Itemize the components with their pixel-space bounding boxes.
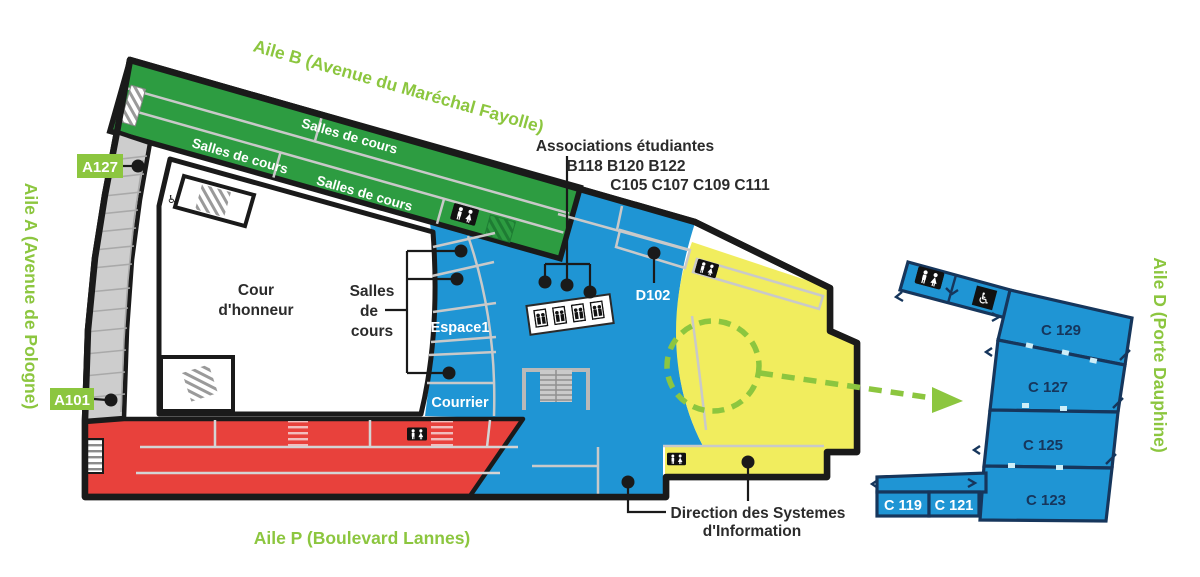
detail-corridor — [877, 473, 986, 492]
room-label: C 127 — [1028, 379, 1068, 396]
direction-label: d'Information — [703, 523, 801, 540]
room-label: C 119 — [884, 498, 922, 514]
room-label: C 125 — [1023, 437, 1063, 454]
floorplan-map: Salles de cours Salles de cours Salles d… — [0, 0, 1200, 577]
associations-rooms-c: C105 C107 C109 C111 — [610, 177, 770, 194]
badge-a127: A127 — [77, 154, 123, 178]
direction-label: Direction des Systemes — [671, 505, 846, 522]
courtyard-label: Cour — [238, 282, 274, 299]
wing-label-aile-a: Aile A (Avenue de Pologne) — [21, 183, 41, 410]
room-label: Espace1 — [431, 320, 490, 336]
svg-text:A101: A101 — [54, 392, 90, 409]
svg-text:A127: A127 — [82, 159, 118, 176]
floorplan-page: Salles de cours Salles de cours Salles d… — [0, 0, 1200, 577]
bracket-label: Salles — [350, 283, 395, 300]
wing-p-red — [85, 419, 523, 496]
courtyard-label: d'honneur — [218, 302, 293, 319]
wing-label-aile-p: Aile P (Boulevard Lannes) — [254, 528, 471, 548]
room-label: C 123 — [1026, 492, 1066, 509]
room-label: C 129 — [1041, 322, 1081, 339]
bracket-label: de — [360, 303, 378, 320]
escalator-hatch-red-1 — [288, 421, 308, 446]
escalator-hatch-red-2 — [431, 421, 453, 446]
bracket-label: cours — [351, 323, 393, 340]
room-label: D102 — [636, 288, 671, 304]
zoom-arrowhead — [932, 387, 963, 413]
wheelchair-icon-courtyard: ♿ — [167, 194, 177, 206]
associations-rooms-b: B118 B120 B122 — [567, 158, 686, 175]
wc-icon-red-wing — [407, 427, 427, 440]
associations-title: Associations étudiantes — [536, 138, 714, 155]
room-label: Courrier — [431, 395, 489, 411]
wing-label-aile-d: Aile D (Porte Dauphine) — [1150, 257, 1170, 452]
wc-icon-yellow-south — [667, 453, 686, 465]
room-label: C 121 — [935, 498, 974, 514]
stairs-strip-red-west — [87, 439, 103, 473]
badge-a101: A101 — [50, 388, 94, 410]
detail-aile-d: ♿ — [872, 262, 1132, 521]
